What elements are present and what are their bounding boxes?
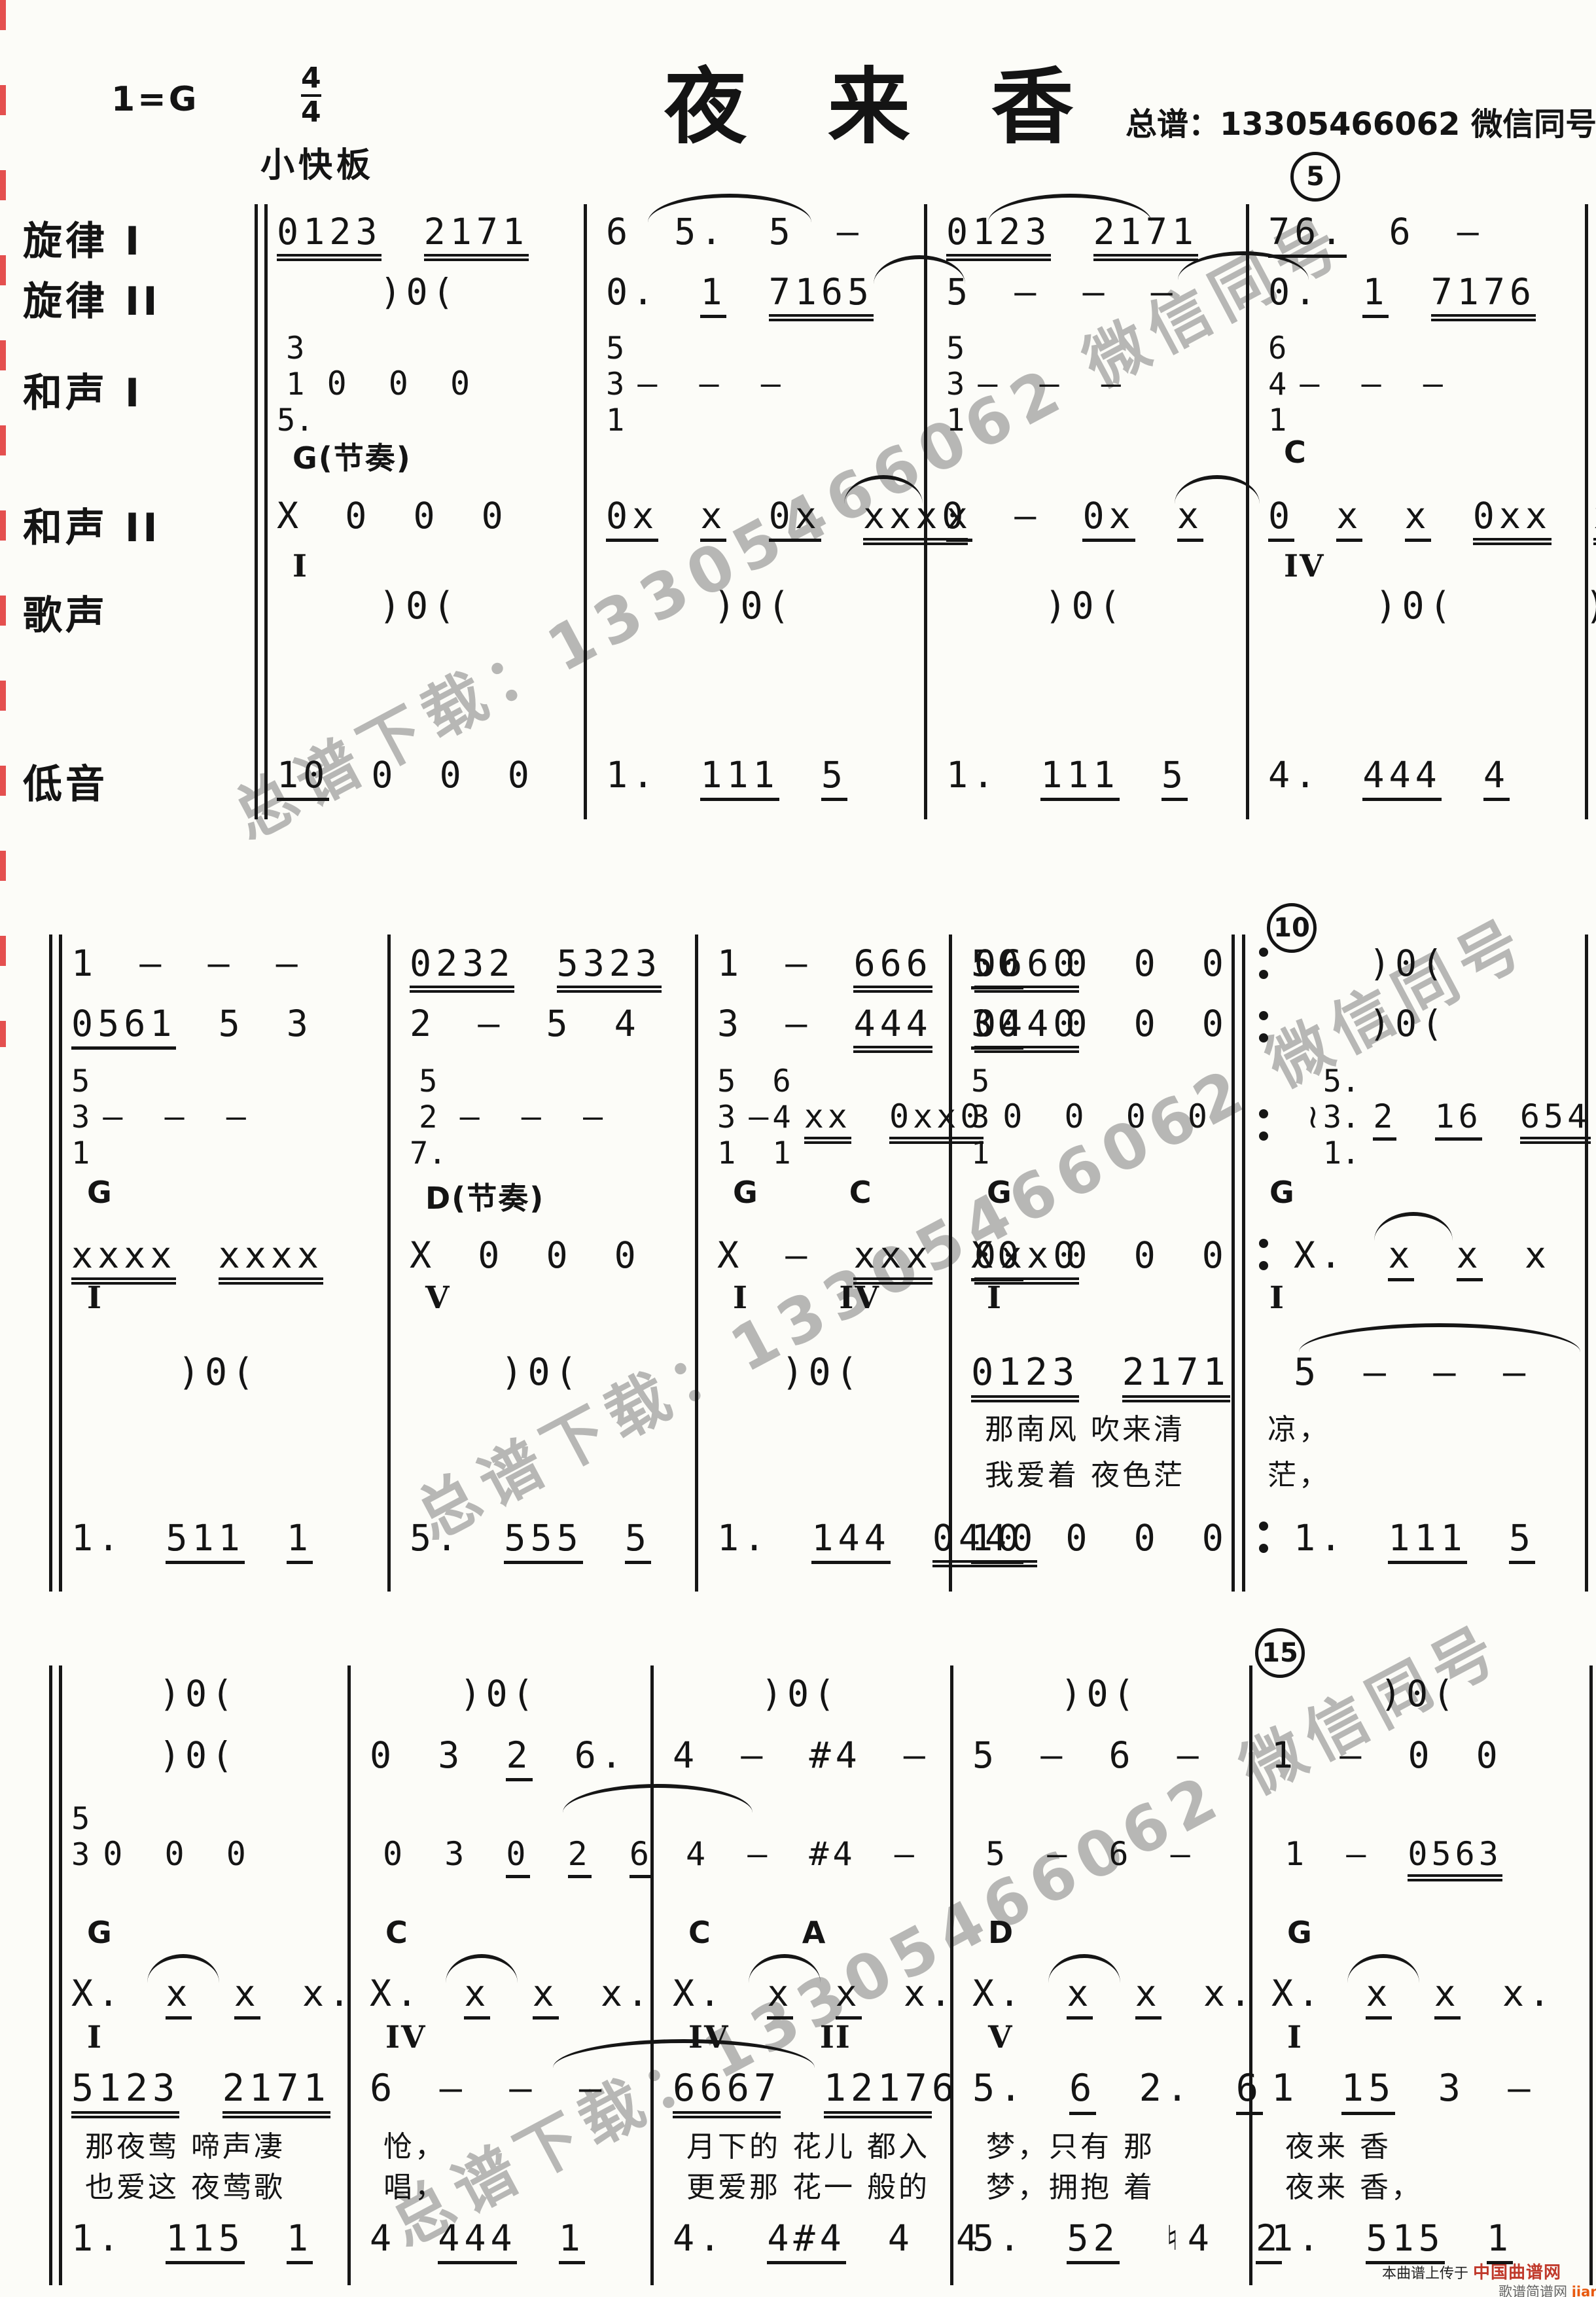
page-title: 夜 来 香: [664, 41, 1100, 160]
harmony1-notes: 531– – –: [946, 330, 1125, 438]
melody2-notes: 2 – 5 4: [410, 1003, 641, 1044]
tie-arc: [1347, 1954, 1419, 1983]
barline: [695, 935, 698, 1592]
chord-notes: D(节奏): [425, 1175, 544, 1218]
harmony1-figures: – – –: [978, 365, 1125, 402]
bass-notes: 1. 111 5: [1294, 1517, 1535, 1559]
lyric1-notes: 月下的 花儿 都入: [686, 2123, 930, 2165]
part-label-melody2: 旋律 II: [23, 270, 161, 327]
chord-stack: 531: [971, 1063, 989, 1171]
melody2-notes: 0. 1 7165: [606, 271, 874, 313]
vocal-notes: )0(: [695, 1351, 949, 1394]
barline: [59, 935, 62, 1592]
melody2-notes: )0(: [255, 271, 584, 313]
roman-notes: I: [293, 548, 308, 584]
melody1-notes: )0(: [1249, 1673, 1589, 1715]
harmony1-notes: 531–641xx 0xx0: [717, 1063, 984, 1171]
chord-stack: 53: [71, 1801, 90, 1873]
melody2-notes: 5 – – –: [946, 271, 1177, 313]
roman-notes: V: [988, 2020, 1013, 2056]
barline: [387, 935, 391, 1592]
melody1-notes: 1 – – –: [71, 942, 302, 984]
bass-notes: 1. 111 5: [946, 754, 1188, 796]
harmony2-notes: xxxx xxxx: [71, 1234, 323, 1276]
chord-stack: 531: [606, 330, 624, 438]
repeat-dot: [1259, 1522, 1268, 1531]
bass-notes: 10 0 0 0: [971, 1517, 1228, 1559]
vocal-notes: 5123 2171: [71, 2067, 330, 2110]
chord-notes: D: [988, 1915, 1014, 1950]
harmony1-notes: 527.– – –: [410, 1063, 607, 1171]
part-label-melody1: 旋律 I: [23, 209, 143, 266]
vocal-notes: )0(: [255, 584, 584, 628]
harmony1-notes: 641– – –: [1268, 330, 1447, 438]
part-label-harmony1: 和声 I: [23, 361, 143, 418]
harmony1-figures: 2 16 654: [1373, 1097, 1591, 1135]
time-signature-top: 4: [301, 63, 321, 94]
lyric2-notes: 茫，: [1268, 1451, 1330, 1493]
lyric1-notes: 那夜莺 啼声凄: [85, 2123, 285, 2165]
lyric1-notes: 凉，: [1268, 1406, 1330, 1448]
barline: [584, 204, 587, 819]
melody1-notes: )0(: [650, 1673, 950, 1715]
tie-arc: [446, 1954, 518, 1983]
roman-notes: IV: [1284, 548, 1324, 584]
bass-notes: 4. 444 4: [1268, 754, 1510, 796]
scan-artifact-red-line: [0, 0, 6, 1047]
harmony1-figures: 4 – #4 –: [686, 1835, 918, 1873]
melody2-notes: 30 0 0 0: [971, 1003, 1228, 1044]
part-label-bass: 低音: [23, 753, 108, 810]
harmony1-figures: – – –: [103, 1097, 250, 1135]
vocal-notes: )0(: [924, 584, 1246, 628]
chord-stack: 641: [1268, 330, 1286, 438]
melody1-notes: 0232 5323: [410, 942, 662, 984]
footer-site-name: 歌谱简谱网: [1498, 2284, 1567, 2297]
chord-stack: 531: [946, 330, 965, 438]
harmony1-figures: ≀: [1307, 1097, 1323, 1135]
harmony2-notes: 0 x x 0xx xxx: [1268, 495, 1596, 537]
part-label-vocal: 歌声: [23, 584, 108, 641]
roman-notes: I: [87, 1280, 103, 1316]
harmony1-figures: xx 0xx0: [804, 1097, 984, 1135]
chord-notes: C A: [688, 1915, 826, 1950]
melody1-notes: 50 0 0 0: [971, 942, 1228, 984]
harmony1-figures: 0 0 0: [327, 365, 474, 402]
chord-stack: 5.3.1.: [1323, 1063, 1360, 1171]
harmony1-notes: 5310 0 0 0: [971, 1063, 1211, 1171]
vocal-notes: )0(: [584, 584, 924, 628]
bass-notes: 1. 111 5: [606, 754, 847, 796]
roman-notes: I: [1287, 2020, 1303, 2056]
bass-notes: 4 444 1: [370, 2217, 585, 2259]
bass-notes: 1. 115 1: [71, 2217, 313, 2259]
melody2-notes: 1 – 0 0: [1271, 1734, 1502, 1776]
chord-notes: G: [87, 1915, 113, 1950]
bass-notes: 5. 52 ♮4 2: [972, 2217, 1282, 2259]
harmony2-notes: x – 0x x: [946, 495, 1203, 537]
tie-arc: [1048, 1954, 1120, 1983]
harmony1-notes: 315.0 0 0: [277, 330, 474, 438]
lyric1-notes: 梦，只有 那: [986, 2123, 1155, 2165]
melody2-notes: 0561 5 3: [71, 1003, 313, 1044]
harmony1-notes: 530 0 0: [71, 1801, 250, 1873]
chord-stack: 531: [71, 1063, 90, 1171]
repeat-dot: [1259, 1131, 1268, 1141]
score-page: 1=G 4 4 夜 来 香 总谱：13305466062 微信同号 小快板 旋律…: [0, 0, 1596, 2297]
lyric2-notes: 夜来 香，: [1285, 2163, 1423, 2205]
chord-stack: 531: [717, 1063, 736, 1171]
time-signature-bottom: 4: [301, 94, 321, 128]
melody1-notes: )0(: [49, 1673, 347, 1715]
vocal-notes: )0(: [387, 1351, 695, 1394]
chord-notes: G: [87, 1175, 113, 1210]
tie-arc: [563, 1784, 753, 1813]
lyric2-notes: 更爱那 花一 般的: [686, 2163, 930, 2205]
chord-stack: 315.: [277, 330, 314, 438]
roman-notes: I IV: [733, 1280, 880, 1316]
melody2-notes: 0 3 2 6.: [370, 1734, 627, 1776]
melody2-notes: 4 – #4 –: [673, 1734, 930, 1776]
harmony1-notes: 531– – –: [606, 330, 785, 438]
vocal-notes: 0123 2171: [971, 1351, 1230, 1394]
barline: [49, 935, 52, 1592]
lyric1-notes: 夜来 香: [1285, 2123, 1391, 2165]
chord-notes: G: [987, 1175, 1013, 1210]
harmony2-notes: X 0 0 0: [410, 1234, 641, 1276]
melody1-notes: )0(: [347, 1673, 650, 1715]
time-signature: 4 4: [301, 63, 321, 128]
tie-arc: [147, 1954, 219, 1983]
chord-notes: G: [1269, 1175, 1296, 1210]
bass-notes: 1. 515 1: [1271, 2217, 1513, 2259]
chord-notes: C: [385, 1915, 409, 1950]
lyric2-notes: 唱，: [383, 2163, 446, 2205]
melody1-notes: )0(: [1232, 942, 1585, 984]
tie-arc: [648, 194, 811, 223]
lyric2-notes: 梦，拥抱 着: [986, 2163, 1155, 2205]
roman-notes: I: [1269, 1280, 1285, 1316]
bass-notes: 4. 4#4 4 4: [673, 2217, 982, 2259]
repeat-dot: [1259, 1261, 1268, 1270]
melody2-notes: )0(: [1232, 1003, 1585, 1044]
footer-site-url: jianpu.cn: [1572, 2284, 1596, 2297]
repeat-dot: [1259, 1109, 1268, 1118]
harmony1-figures: – – –: [637, 365, 785, 402]
tie-arc: [988, 194, 1152, 223]
harmony1-figures: 1 – 0563: [1285, 1835, 1502, 1873]
harmony1-figures: 0 3 0 2 6: [383, 1835, 653, 1873]
barline: [1589, 1665, 1593, 2285]
footer-logo: 中国曲谱网: [1473, 2263, 1561, 2283]
vocal-notes: )0(: [1585, 584, 1596, 628]
vocal-notes: )0(: [1246, 584, 1585, 628]
barline: [1246, 204, 1249, 819]
tempo-marking: 小快板: [260, 137, 374, 187]
melody1-notes: )0(: [950, 1673, 1249, 1715]
footer-upload-text: 本曲谱上传于: [1382, 2266, 1468, 2282]
melody1-notes: 0123 2171: [277, 211, 529, 253]
lyric1-notes: 怆，: [383, 2123, 446, 2165]
roman-notes: IV: [385, 2020, 426, 2056]
melody2-notes: )0(: [49, 1734, 347, 1776]
bass-notes: 5. 555 5: [410, 1517, 651, 1559]
vocal-notes: 6667 12176: [673, 2067, 959, 2110]
harmony1-figures: –: [749, 1097, 772, 1135]
melody1-notes: 76. 6 –: [1268, 211, 1483, 253]
harmony1-figures: 5 – 6 –: [985, 1835, 1194, 1873]
chord-notes: G C: [733, 1175, 873, 1210]
melody2-notes: 5 – 6 –: [972, 1734, 1203, 1776]
harmony1-notes: ≀5.3.1.2 16 654: [1294, 1063, 1591, 1171]
lyric1-notes: 那南风 吹来清: [985, 1406, 1185, 1448]
vocal-notes: 1 15 3 –: [1271, 2067, 1535, 2110]
harmony1-figures: 0 0 0 0: [1002, 1097, 1211, 1135]
tie-arc: [1299, 1323, 1580, 1352]
vocal-notes: 5. 6 2. 6: [972, 2067, 1263, 2110]
harmony2-notes: X 0 0 0: [277, 495, 508, 537]
vocal-notes: 6 – – –: [370, 2067, 606, 2110]
roman-notes: I: [987, 1280, 1002, 1316]
vocal-notes: )0(: [49, 1351, 387, 1394]
bass-notes: 10 0 0 0: [277, 754, 534, 796]
footer-site-credit: 歌谱简谱网 jianpu.cn: [1498, 2281, 1596, 2297]
harmony1-notes: 5 – 6 –: [972, 1801, 1194, 1873]
harmony1-figures: 0 0 0: [103, 1835, 250, 1873]
harmony2-notes: X0 0 0 0: [971, 1234, 1228, 1276]
lyric2-notes: 我爱着 夜色茫: [985, 1451, 1185, 1493]
chord-notes: G(节奏): [293, 435, 412, 478]
chord-stack: 527.: [410, 1063, 447, 1171]
roman-notes: V: [425, 1280, 450, 1316]
roman-notes: I: [87, 2020, 103, 2056]
harmony1-notes: 1 – 0563: [1271, 1801, 1502, 1873]
measure-number-15: 15: [1255, 1628, 1305, 1678]
chord-notes: C: [1284, 435, 1307, 470]
contact-phone: 总谱：13305466062 微信同号: [1126, 98, 1596, 144]
harmony1-figures: – – –: [460, 1097, 607, 1135]
tie-arc: [1374, 1212, 1453, 1241]
vocal-notes: 5 – – –: [1294, 1351, 1530, 1394]
chord-stack: 641: [772, 1063, 790, 1171]
chord-notes: G: [1287, 1915, 1313, 1950]
part-label-harmony2: 和声 II: [23, 496, 161, 553]
tie-arc: [844, 475, 923, 504]
repeat-dot: [1259, 1239, 1268, 1248]
tie-arc: [749, 1954, 821, 1983]
harmony1-notes: 531– – –: [71, 1063, 250, 1171]
repeat-dot: [1259, 1544, 1268, 1553]
bass-notes: 1. 511 1: [71, 1517, 313, 1559]
harmony1-figures: – – –: [1300, 365, 1447, 402]
lyric2-notes: 也爱这 夜莺歌: [85, 2163, 285, 2205]
key-signature: 1=G: [111, 80, 199, 119]
measure-number-5: 5: [1290, 152, 1340, 202]
